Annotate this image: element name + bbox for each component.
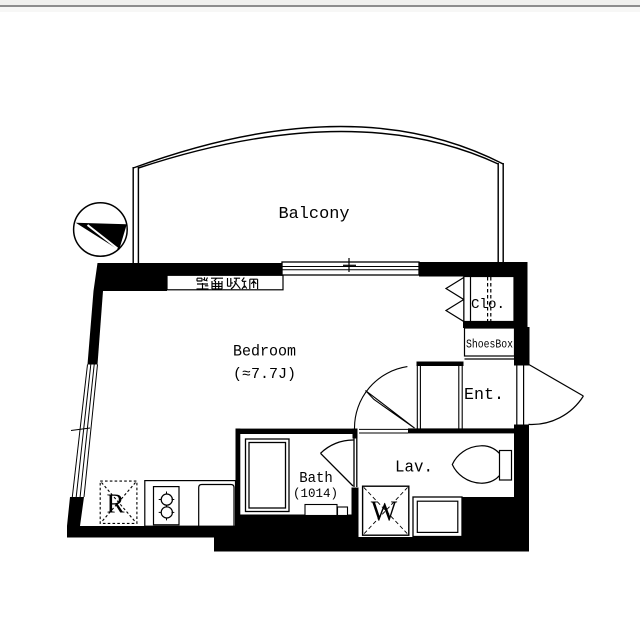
svg-text:(≈7.7J): (≈7.7J) <box>233 366 296 383</box>
svg-text:Bath: Bath <box>299 471 333 487</box>
svg-text:(1014): (1014) <box>293 486 338 501</box>
svg-text:Lav.: Lav. <box>395 458 433 477</box>
svg-text:Clo.: Clo. <box>471 297 505 313</box>
svg-text:R: R <box>106 489 124 519</box>
svg-text:Balcony: Balcony <box>279 205 350 224</box>
svg-text:W: W <box>371 497 398 528</box>
svg-text:ShoesBox: ShoesBox <box>466 339 513 352</box>
svg-text:Bedroom: Bedroom <box>233 343 296 361</box>
svg-text:Ent.: Ent. <box>464 386 504 405</box>
